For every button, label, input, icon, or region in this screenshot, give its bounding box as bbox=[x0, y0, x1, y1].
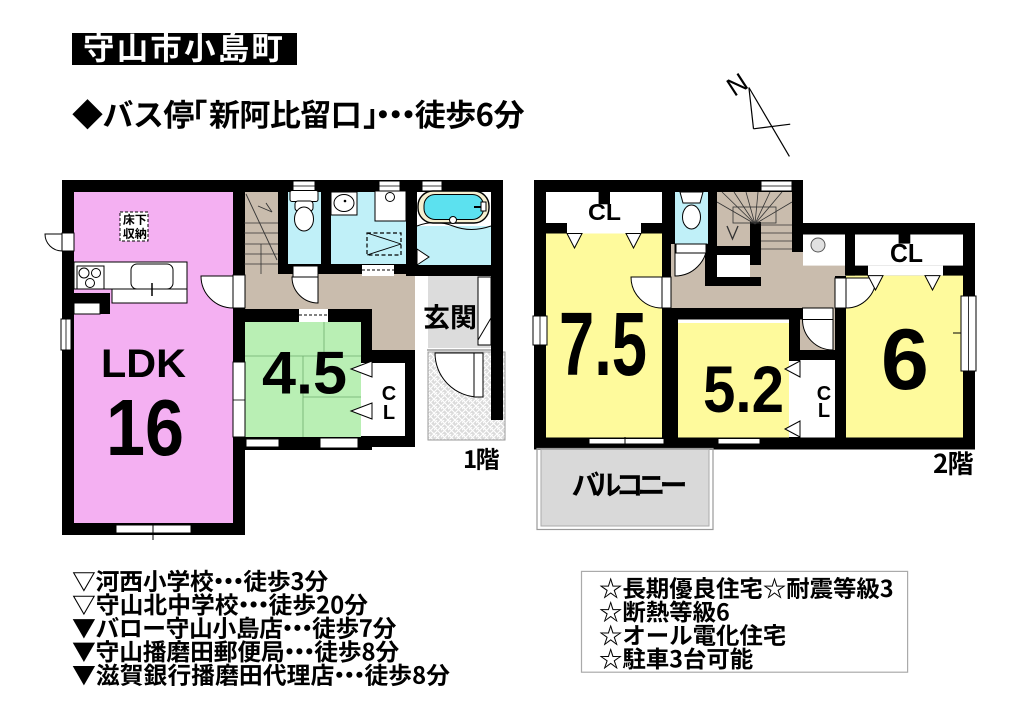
svg-text:4.5: 4.5 bbox=[262, 340, 347, 407]
svg-text:CL: CL bbox=[588, 199, 621, 225]
svg-text:CL: CL bbox=[890, 238, 923, 268]
svg-text:16: 16 bbox=[106, 383, 184, 472]
svg-text:5.2: 5.2 bbox=[703, 352, 784, 426]
svg-text:7.5: 7.5 bbox=[559, 295, 647, 395]
svg-text:LDK: LDK bbox=[101, 342, 186, 386]
svg-text:6: 6 bbox=[881, 312, 929, 408]
svg-text:L: L bbox=[383, 402, 395, 424]
svg-text:L: L bbox=[818, 400, 830, 422]
